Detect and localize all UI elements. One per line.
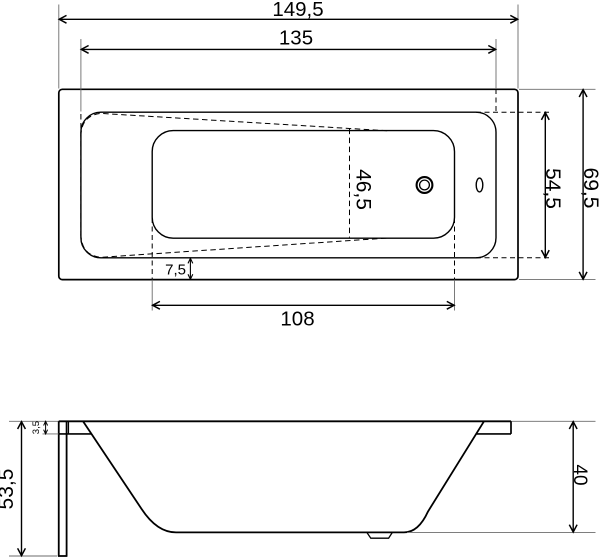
svg-text:3,5: 3,5 (31, 421, 42, 434)
svg-text:46,5: 46,5 (352, 169, 375, 210)
svg-text:69,5: 69,5 (579, 168, 600, 209)
svg-text:135: 135 (279, 27, 313, 50)
svg-text:54,5: 54,5 (541, 168, 564, 209)
svg-text:149,5: 149,5 (272, 0, 323, 21)
svg-text:40: 40 (569, 464, 590, 485)
svg-text:108: 108 (280, 308, 314, 331)
svg-text:7,5: 7,5 (165, 262, 186, 279)
svg-text:53,5: 53,5 (0, 469, 18, 510)
